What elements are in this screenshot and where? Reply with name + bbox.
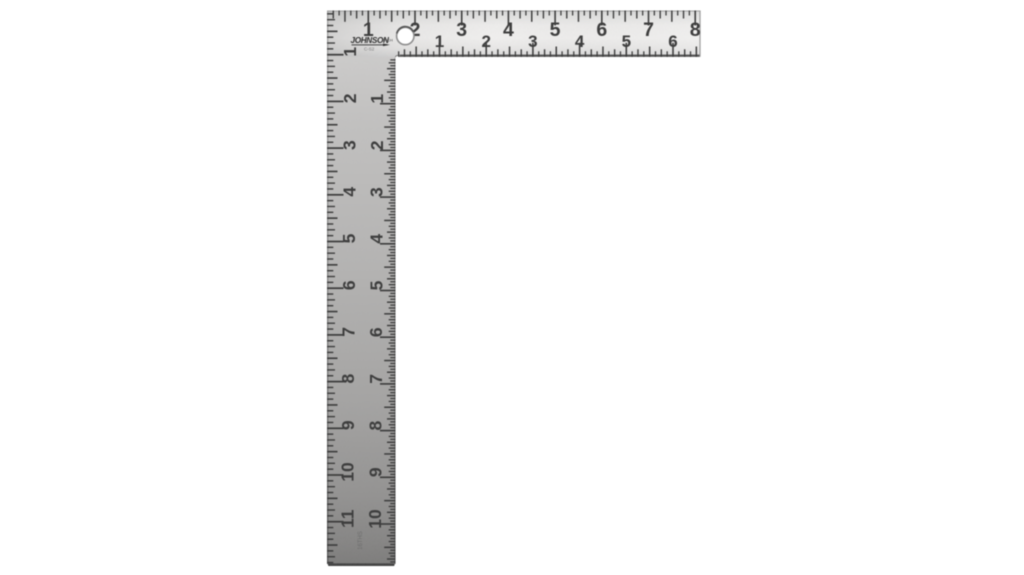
svg-text:8: 8 (690, 19, 701, 41)
svg-text:3: 3 (340, 140, 360, 150)
svg-text:7: 7 (339, 327, 359, 337)
svg-text:6: 6 (668, 32, 677, 51)
svg-text:7: 7 (643, 19, 654, 41)
svg-text:4: 4 (575, 32, 585, 51)
svg-text:10: 10 (365, 509, 385, 529)
svg-text:5: 5 (622, 32, 631, 51)
svg-text:4: 4 (339, 187, 359, 197)
svg-text:C-S2: C-S2 (364, 47, 375, 52)
svg-text:5: 5 (550, 19, 561, 41)
svg-text:2: 2 (340, 93, 360, 103)
svg-text:3: 3 (456, 19, 467, 41)
svg-text:5: 5 (339, 233, 359, 243)
svg-text:1: 1 (367, 94, 387, 104)
svg-text:8: 8 (338, 373, 358, 383)
svg-text:10: 10 (338, 462, 358, 482)
svg-text:4: 4 (503, 19, 514, 41)
svg-text:2: 2 (367, 140, 387, 150)
svg-text:7: 7 (366, 374, 386, 384)
svg-text:1: 1 (340, 47, 360, 57)
svg-text:1: 1 (435, 32, 444, 51)
svg-text:9: 9 (365, 467, 385, 477)
svg-text:5: 5 (366, 280, 386, 290)
svg-text:2: 2 (481, 32, 490, 51)
svg-text:INCH: INCH (383, 38, 393, 43)
svg-text:6: 6 (339, 280, 359, 290)
svg-text:6: 6 (596, 19, 607, 41)
svg-text:8: 8 (366, 420, 386, 430)
svg-text:4: 4 (367, 234, 387, 244)
svg-text:11: 11 (337, 509, 357, 528)
svg-text:16THS: 16THS (358, 531, 364, 550)
svg-text:3: 3 (528, 32, 537, 51)
svg-text:6: 6 (366, 327, 386, 337)
svg-text:3: 3 (367, 187, 387, 197)
svg-text:9: 9 (338, 420, 358, 430)
